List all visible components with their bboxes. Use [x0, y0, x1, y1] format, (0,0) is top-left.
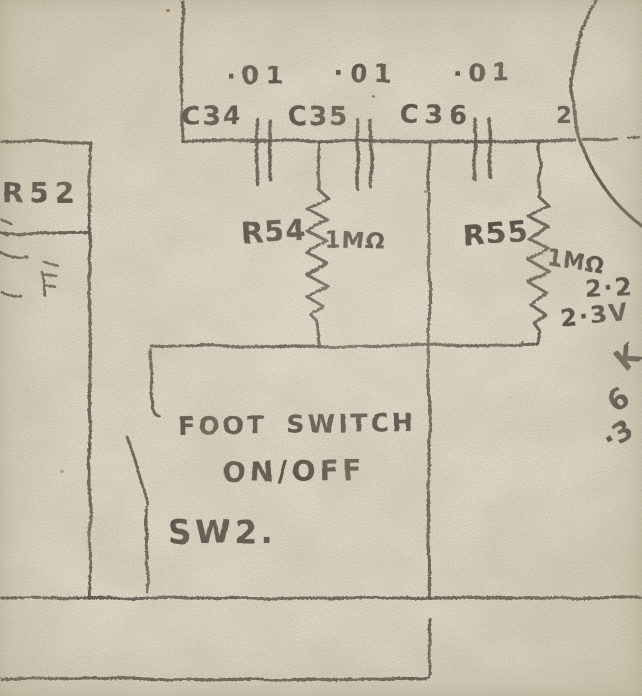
resistor-r55-ref: R55 [461, 213, 529, 253]
capacitor-c36-ref: C36 [399, 100, 473, 131]
labels-layer: ·01 ·01 ·01 C34 C35 C36 R52 R54 1MΩ R55 … [0, 0, 642, 696]
schematic-page: ·01 ·01 ·01 C34 C35 C36 R52 R54 1MΩ R55 … [0, 0, 642, 696]
foot-switch-label-line2: ON/OFF [222, 453, 366, 488]
capacitor-c35-ref: C35 [288, 102, 349, 132]
resistor-r54-value: 1MΩ [324, 227, 386, 255]
foot-switch-ref: SW2. [168, 513, 277, 551]
capacitor-c35-value: ·01 [333, 58, 399, 89]
resistor-r54-ref: R54 [240, 213, 307, 250]
voltage-annotation-2: 2·3V [559, 298, 631, 333]
foot-switch-label-line1: FOOT SWITCH [178, 408, 416, 441]
edge-fragment-3: ·3 [596, 412, 639, 456]
resistor-r52-ref: R52 [2, 176, 81, 209]
capacitor-c36-value: ·01 [452, 57, 515, 88]
valve-pin-number: 2 [556, 103, 572, 129]
capacitor-c34-value: ·01 [226, 60, 289, 91]
capacitor-c34-ref: C34 [181, 101, 243, 132]
edge-fragment-1: K [608, 337, 642, 379]
